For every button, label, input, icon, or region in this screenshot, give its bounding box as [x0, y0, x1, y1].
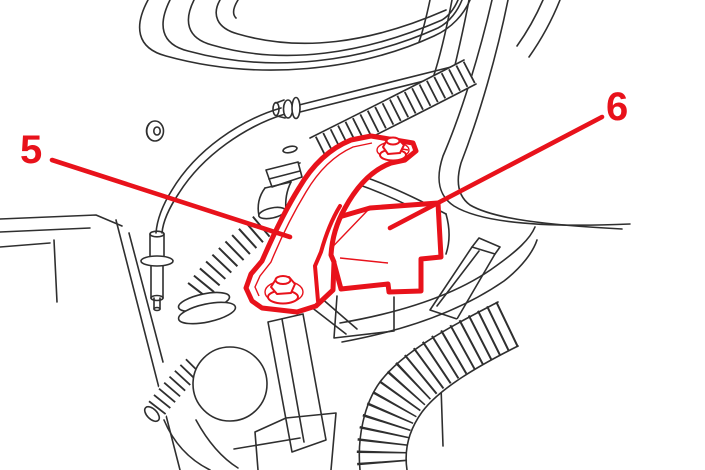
- callout-5-leader-line: [52, 160, 290, 237]
- callout-6-leader-line: [390, 117, 602, 228]
- lower-fork-lines: [164, 420, 238, 470]
- parts-diagram: 5 6: [0, 0, 705, 470]
- grommet: [147, 121, 164, 141]
- callout-6-label: 6: [606, 87, 628, 127]
- engine-bay-line-art: [0, 0, 705, 470]
- ribbed-hose-lower-left: [142, 366, 194, 424]
- corrugated-elbow-hose: [359, 302, 518, 470]
- left-body-panel: [0, 215, 122, 302]
- hose-bundle: [140, 0, 470, 70]
- callout-5-label: 5: [20, 130, 42, 170]
- ball-fitting: [193, 347, 267, 421]
- cable-adjuster-fitting: [273, 98, 300, 119]
